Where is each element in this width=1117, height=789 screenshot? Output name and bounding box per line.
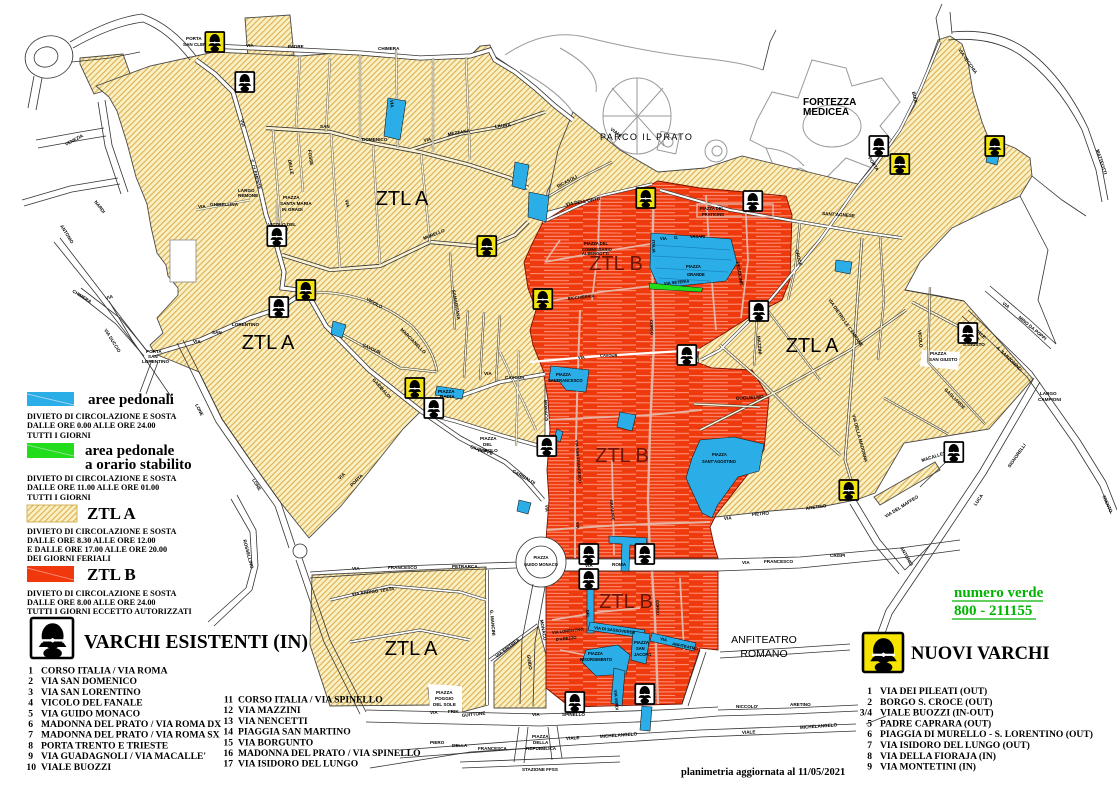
- svg-text:800 - 211155: 800 - 211155: [954, 603, 1032, 619]
- svg-text:PIAGGIA DI MURELLO - S. LORENT: PIAGGIA DI MURELLO - S. LORENTINO (OUT): [880, 729, 1093, 740]
- svg-text:VIA DELLA FIORAJA (IN): VIA DELLA FIORAJA (IN): [880, 751, 996, 762]
- svg-text:2: 2: [867, 697, 872, 708]
- svg-text:VIA: VIA: [660, 236, 667, 241]
- svg-text:ZTL A: ZTL A: [385, 638, 438, 660]
- svg-text:DALLE ORE 0.00 ALLE ORE 24.00: DALLE ORE 0.00 ALLE ORE 24.00: [27, 421, 156, 430]
- svg-text:17: 17: [223, 759, 233, 770]
- svg-text:PIAGGIA SAN MARTINO: PIAGGIA SAN MARTINO: [238, 727, 351, 738]
- svg-text:CAMPIONI: CAMPIONI: [1038, 397, 1061, 402]
- svg-text:LORENTINO: LORENTINO: [142, 359, 169, 364]
- svg-text:6: 6: [867, 729, 872, 740]
- svg-text:FRANCESCO: FRANCESCO: [388, 565, 418, 570]
- svg-text:1: 1: [28, 666, 33, 677]
- svg-text:MADONNA DEL PRATO / VIA ROMA D: MADONNA DEL PRATO / VIA ROMA DX: [41, 719, 221, 730]
- svg-text:VIA: VIA: [193, 339, 201, 344]
- svg-text:DEI GIORNI FERIALI: DEI GIORNI FERIALI: [27, 554, 111, 563]
- svg-text:NUOVI VARCHI: NUOVI VARCHI: [911, 644, 1050, 664]
- svg-text:VIA: VIA: [532, 712, 540, 717]
- svg-text:PETRARCA: PETRARCA: [452, 564, 478, 569]
- svg-text:PADRE: PADRE: [288, 44, 304, 49]
- svg-text:VIA: VIA: [724, 515, 733, 521]
- svg-text:aree pedonali: aree pedonali: [88, 392, 174, 408]
- svg-text:VIA ISIDORO DEL LUNGO (OUT): VIA ISIDORO DEL LUNGO (OUT): [880, 740, 1030, 751]
- svg-text:ROMA: ROMA: [612, 562, 627, 567]
- svg-text:a orario stabilito: a orario stabilito: [85, 457, 192, 473]
- svg-text:VIA: VIA: [430, 710, 438, 715]
- svg-text:ANFITEATRO: ANFITEATRO: [731, 634, 797, 646]
- svg-text:VARCHI ESISTENTI (IN): VARCHI ESISTENTI (IN): [84, 632, 308, 653]
- svg-text:ROMANO: ROMANO: [740, 648, 787, 660]
- svg-text:PIAZZA: PIAZZA: [556, 372, 571, 377]
- svg-text:GRANDE: GRANDE: [687, 272, 705, 277]
- svg-text:DELLA: DELLA: [533, 740, 549, 745]
- svg-text:8: 8: [867, 751, 872, 762]
- svg-text:PORTA TRENTO E TRIESTE: PORTA TRENTO E TRIESTE: [41, 740, 168, 751]
- svg-text:TUTTI I GIORNI: TUTTI I GIORNI: [27, 493, 91, 502]
- svg-text:VIA SAN DOMENICO: VIA SAN DOMENICO: [41, 676, 137, 687]
- svg-text:CAVOUR: CAVOUR: [600, 353, 617, 358]
- svg-text:DEL: DEL: [483, 442, 492, 447]
- svg-text:RISORGIMENTO: RISORGIMENTO: [580, 657, 613, 662]
- svg-text:DIVIETO DI CIRCOLAZIONE E SOST: DIVIETO DI CIRCOLAZIONE E SOSTA: [27, 474, 176, 483]
- svg-text:PIAZZA DEL: PIAZZA DEL: [584, 241, 608, 246]
- svg-text:SAN: SAN: [212, 330, 222, 335]
- svg-text:FRANCESCO: FRANCESCO: [764, 559, 794, 564]
- svg-text:DIVIETO DI CIRCOLAZIONE E SOST: DIVIETO DI CIRCOLAZIONE E SOSTA: [27, 589, 176, 598]
- svg-text:14: 14: [223, 727, 233, 738]
- svg-text:VIA BORGUNTO: VIA BORGUNTO: [238, 737, 313, 748]
- svg-text:VIA DEI PILEATI (OUT): VIA DEI PILEATI (OUT): [880, 686, 987, 697]
- svg-text:VIA: VIA: [484, 371, 492, 376]
- svg-text:VIA: VIA: [352, 566, 360, 571]
- svg-text:SAN: SAN: [320, 124, 330, 129]
- svg-text:PORTA: PORTA: [186, 36, 202, 41]
- svg-text:REMONE: REMONE: [238, 193, 258, 198]
- svg-text:ITALIA: ITALIA: [651, 240, 656, 253]
- svg-text:PIAZZA: PIAZZA: [634, 640, 649, 645]
- svg-text:VIA NENCETTI: VIA NENCETTI: [238, 716, 308, 727]
- svg-text:PIAZZA: PIAZZA: [480, 436, 497, 441]
- svg-text:VIA GUIDO MONACO: VIA GUIDO MONACO: [41, 708, 140, 719]
- svg-text:9: 9: [867, 762, 872, 773]
- svg-text:numero verde: numero verde: [954, 585, 1044, 601]
- svg-text:SAN GIUSTO: SAN GIUSTO: [929, 357, 958, 362]
- svg-text:13: 13: [223, 716, 233, 727]
- svg-text:VIALE: VIALE: [742, 729, 756, 735]
- svg-text:VICOLO DEL FANALE: VICOLO DEL FANALE: [41, 698, 143, 709]
- svg-text:PIAZZA: PIAZZA: [436, 690, 453, 695]
- svg-text:VIA: VIA: [198, 204, 206, 209]
- svg-text:PIAZZA: PIAZZA: [588, 651, 603, 656]
- svg-text:JACOPO: JACOPO: [634, 652, 652, 657]
- svg-text:CORSO: CORSO: [649, 320, 655, 336]
- svg-text:ZTL B: ZTL B: [87, 565, 136, 584]
- svg-text:DALLE ORE 8.00 ALLE ORE 24.00: DALLE ORE 8.00 ALLE ORE 24.00: [27, 598, 156, 607]
- svg-text:VIALE BUOZZI (IN-OUT): VIALE BUOZZI (IN-OUT): [880, 708, 994, 719]
- svg-text:BORGO S. CROCE (OUT): BORGO S. CROCE (OUT): [880, 697, 992, 708]
- svg-text:CORSO ITALIA / VIA SPINELLO: CORSO ITALIA / VIA SPINELLO: [238, 695, 383, 706]
- svg-text:DALLE ORE 11.00 ALLE ORE 01.00: DALLE ORE 11.00 ALLE ORE 01.00: [27, 483, 159, 492]
- svg-text:G.: G.: [674, 235, 678, 240]
- svg-text:VIA: VIA: [578, 355, 585, 360]
- svg-text:VIA MONTETINI (IN): VIA MONTETINI (IN): [880, 762, 976, 773]
- svg-text:VIA GUADAGNOLI / VIA MACALLE': VIA GUADAGNOLI / VIA MACALLE': [41, 751, 206, 762]
- svg-text:DIVIETO DI CIRCOLAZIONE E SOST: DIVIETO DI CIRCOLAZIONE E SOSTA: [27, 527, 176, 536]
- svg-text:DELLA: DELLA: [452, 743, 468, 748]
- svg-text:POGGIO: POGGIO: [435, 696, 454, 701]
- svg-text:16: 16: [223, 748, 233, 759]
- svg-text:CORSO ITALIA / VIA ROMA: CORSO ITALIA / VIA ROMA: [41, 666, 168, 677]
- svg-text:COMMISSARIO: COMMISSARIO: [582, 247, 613, 252]
- svg-text:VIA: VIA: [389, 100, 395, 109]
- svg-text:MADONNA DEL PRATO / VIA SPINEL: MADONNA DEL PRATO / VIA SPINELLO: [238, 748, 421, 759]
- svg-text:5: 5: [28, 708, 33, 719]
- svg-text:GHIBELLINA: GHIBELLINA: [210, 202, 239, 207]
- svg-text:DALLE ORE 8.30 ALLE ORE 12.00: DALLE ORE 8.30 ALLE ORE 12.00: [27, 536, 156, 545]
- svg-text:VIA ISIDORO DEL LUNGO: VIA ISIDORO DEL LUNGO: [238, 759, 358, 770]
- svg-text:VIALE BUOZZI: VIALE BUOZZI: [41, 762, 111, 773]
- svg-text:LARGO: LARGO: [1040, 391, 1057, 396]
- svg-text:15: 15: [223, 737, 233, 748]
- svg-text:VIA SAN LORENTINO: VIA SAN LORENTINO: [41, 687, 141, 698]
- svg-text:3: 3: [28, 687, 33, 698]
- svg-text:NICCOLO': NICCOLO': [736, 704, 758, 709]
- svg-text:PIERO: PIERO: [430, 740, 445, 745]
- svg-text:VIA: VIA: [742, 560, 750, 565]
- svg-text:PIAZZA: PIAZZA: [283, 195, 300, 200]
- svg-text:3/4: 3/4: [860, 708, 872, 719]
- svg-text:1: 1: [867, 686, 872, 697]
- svg-text:11: 11: [224, 695, 233, 706]
- svg-text:CRISPI: CRISPI: [830, 553, 845, 558]
- svg-text:FRANCESCA: FRANCESCA: [478, 746, 508, 751]
- svg-text:5: 5: [867, 718, 872, 729]
- svg-text:ZTL A: ZTL A: [87, 504, 136, 523]
- svg-text:planimetria aggiornata al 11/0: planimetria aggiornata al 11/05/2021: [681, 767, 845, 778]
- svg-text:CHIMERA: CHIMERA: [378, 46, 400, 51]
- svg-text:FRIK: FRIK: [448, 709, 459, 714]
- svg-text:CAVOUR: CAVOUR: [505, 375, 525, 380]
- svg-text:MADONNA DEL PRATO / VIA ROMA S: MADONNA DEL PRATO / VIA ROMA SX: [41, 730, 220, 741]
- svg-text:12: 12: [223, 705, 233, 716]
- svg-text:ZTL B: ZTL B: [589, 253, 643, 275]
- svg-text:6: 6: [28, 719, 33, 730]
- svg-text:ZTL A: ZTL A: [786, 335, 839, 357]
- svg-text:GUIDO MONACO: GUIDO MONACO: [524, 562, 559, 567]
- svg-text:PIAZZA: PIAZZA: [712, 452, 727, 457]
- svg-text:PIAZZA: PIAZZA: [930, 351, 947, 356]
- svg-text:MONACO: MONACO: [543, 400, 549, 422]
- svg-text:ZTL A: ZTL A: [242, 332, 295, 354]
- svg-text:DIVIETO DI CIRCOLAZIONE E SOST: DIVIETO DI CIRCOLAZIONE E SOSTA: [27, 412, 176, 421]
- svg-text:PRATICINO: PRATICINO: [702, 212, 725, 217]
- svg-text:10: 10: [26, 762, 36, 773]
- svg-text:SANTA MARIA: SANTA MARIA: [280, 201, 312, 206]
- svg-text:DEL: DEL: [585, 610, 591, 619]
- svg-text:SAN: SAN: [636, 646, 645, 651]
- svg-text:ZTL A: ZTL A: [376, 188, 429, 210]
- svg-text:2: 2: [28, 676, 33, 687]
- svg-text:TUTTI I GIORNI: TUTTI I GIORNI: [27, 431, 91, 440]
- svg-text:DOMENICO: DOMENICO: [362, 137, 388, 142]
- svg-text:LORENTINO: LORENTINO: [232, 322, 259, 327]
- svg-text:VIA MAZZINI: VIA MAZZINI: [238, 705, 301, 716]
- svg-text:PIAZZA: PIAZZA: [686, 264, 701, 269]
- svg-text:MEDICEA: MEDICEA: [803, 107, 849, 118]
- svg-text:VIA: VIA: [246, 43, 254, 48]
- svg-text:PIAZZA DEL: PIAZZA DEL: [700, 206, 724, 211]
- svg-text:9: 9: [28, 751, 33, 762]
- svg-text:CORSO: CORSO: [655, 600, 661, 616]
- svg-text:POPOLO: POPOLO: [478, 448, 498, 453]
- svg-text:ZTL B: ZTL B: [595, 445, 649, 467]
- svg-text:TUTTI I GIORNI ECCETTO AUTORIZ: TUTTI I GIORNI ECCETTO AUTORIZZATI: [27, 607, 192, 616]
- svg-text:DEL SOLE: DEL SOLE: [433, 702, 456, 707]
- svg-text:E DALLE ORE 17.00 ALLE ORE 20.: E DALLE ORE 17.00 ALLE ORE 20.00: [27, 545, 167, 554]
- svg-text:PADRE CAPRARA (OUT): PADRE CAPRARA (OUT): [880, 718, 991, 729]
- svg-text:VIALE: VIALE: [566, 735, 580, 741]
- svg-text:SANFRANCESCO: SANFRANCESCO: [548, 378, 583, 383]
- svg-text:ZTL B: ZTL B: [599, 591, 653, 613]
- svg-text:VIA: VIA: [575, 522, 581, 529]
- svg-text:VIA: VIA: [544, 505, 550, 512]
- svg-text:PIAZZA: PIAZZA: [532, 734, 549, 739]
- svg-text:8: 8: [28, 740, 33, 751]
- svg-text:ARETINO: ARETINO: [790, 702, 811, 707]
- svg-text:7: 7: [867, 740, 872, 751]
- svg-text:IN GRADI: IN GRADI: [282, 207, 303, 212]
- svg-text:VASARI: VASARI: [690, 234, 705, 239]
- svg-text:PIAZZA: PIAZZA: [533, 555, 548, 560]
- svg-text:REPUBBLICA: REPUBBLICA: [526, 746, 557, 751]
- svg-text:STAZIONE FFSS: STAZIONE FFSS: [522, 767, 558, 772]
- svg-text:4: 4: [28, 698, 33, 709]
- svg-text:SANT'AGOSTINO: SANT'AGOSTINO: [702, 459, 737, 464]
- svg-text:7: 7: [28, 730, 33, 741]
